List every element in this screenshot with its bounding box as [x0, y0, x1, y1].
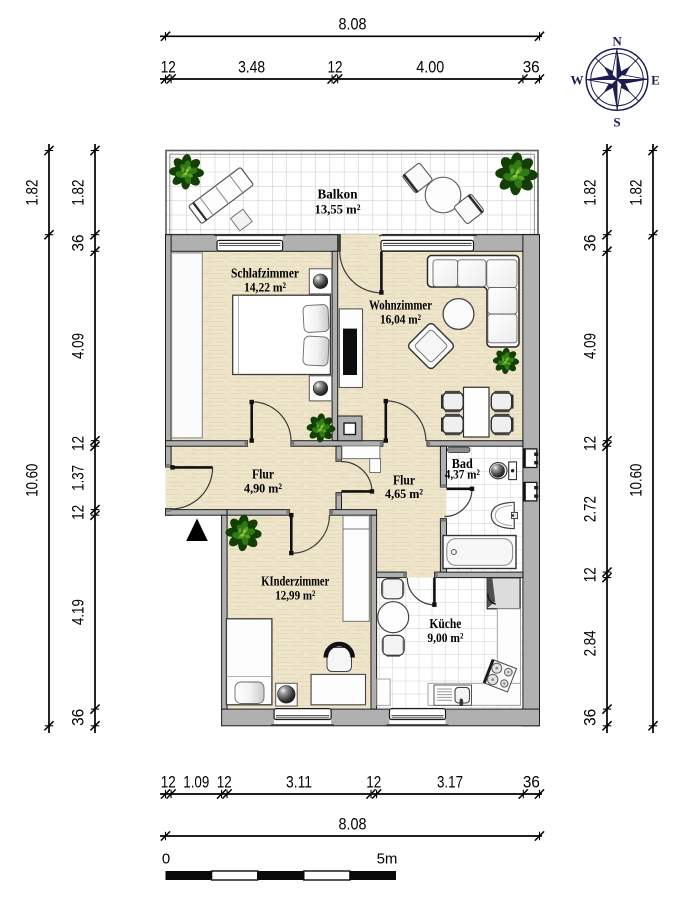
svg-text:36: 36	[581, 709, 600, 726]
svg-text:Schlafzimmer: Schlafzimmer	[231, 266, 299, 281]
svg-text:2.84: 2.84	[581, 630, 600, 656]
svg-text:8.08: 8.08	[339, 15, 367, 34]
svg-text:12,99 m²: 12,99 m²	[275, 588, 315, 603]
svg-text:1.82: 1.82	[69, 180, 88, 206]
svg-text:4,65 m²: 4,65 m²	[385, 486, 423, 501]
svg-text:12: 12	[161, 773, 176, 792]
svg-text:2.72: 2.72	[581, 496, 600, 522]
svg-text:14,22 m²: 14,22 m²	[244, 280, 286, 295]
svg-text:1.82: 1.82	[627, 180, 646, 206]
svg-text:4.00: 4.00	[416, 58, 444, 77]
svg-text:KInderzimmer: KInderzimmer	[261, 574, 329, 589]
svg-text:12: 12	[69, 436, 88, 451]
svg-text:12: 12	[581, 567, 600, 582]
svg-text:16,04 m²: 16,04 m²	[380, 312, 421, 327]
svg-text:12: 12	[366, 773, 381, 792]
svg-text:36: 36	[581, 235, 600, 252]
svg-text:13,55 m²: 13,55 m²	[315, 202, 361, 217]
svg-text:3.11: 3.11	[286, 773, 312, 792]
svg-text:S: S	[613, 115, 620, 130]
svg-text:4.09: 4.09	[69, 333, 88, 359]
svg-text:N: N	[612, 34, 622, 49]
svg-text:5m: 5m	[377, 851, 398, 868]
svg-text:1.37: 1.37	[69, 465, 88, 491]
svg-text:3.48: 3.48	[238, 58, 265, 77]
svg-text:36: 36	[69, 709, 88, 726]
svg-text:E: E	[651, 73, 660, 88]
svg-text:12: 12	[69, 505, 88, 520]
svg-text:12: 12	[217, 773, 232, 792]
svg-text:12: 12	[328, 58, 343, 77]
svg-text:4,90 m²: 4,90 m²	[244, 481, 282, 496]
svg-text:10.60: 10.60	[627, 464, 646, 497]
svg-text:36: 36	[523, 773, 540, 792]
svg-text:4,37 m²: 4,37 m²	[445, 467, 480, 482]
svg-text:3.17: 3.17	[437, 773, 463, 792]
svg-text:Wohnzimmer: Wohnzimmer	[369, 298, 432, 313]
svg-text:W: W	[571, 73, 584, 88]
svg-text:1.82: 1.82	[23, 180, 42, 206]
svg-text:1.82: 1.82	[581, 180, 600, 206]
svg-text:10.60: 10.60	[23, 464, 42, 497]
svg-text:36: 36	[69, 235, 88, 252]
svg-text:36: 36	[523, 58, 540, 77]
svg-text:4.09: 4.09	[581, 333, 600, 359]
svg-text:9,00 m²: 9,00 m²	[427, 630, 463, 645]
svg-text:Küche: Küche	[429, 616, 461, 631]
svg-text:0: 0	[162, 851, 170, 868]
svg-text:Balkon: Balkon	[318, 187, 358, 202]
svg-text:Flur: Flur	[252, 467, 274, 482]
svg-text:12: 12	[161, 58, 176, 77]
svg-text:4.19: 4.19	[69, 599, 88, 625]
svg-text:1.09: 1.09	[183, 773, 209, 792]
svg-text:8.08: 8.08	[339, 815, 367, 834]
svg-text:12: 12	[581, 436, 600, 451]
